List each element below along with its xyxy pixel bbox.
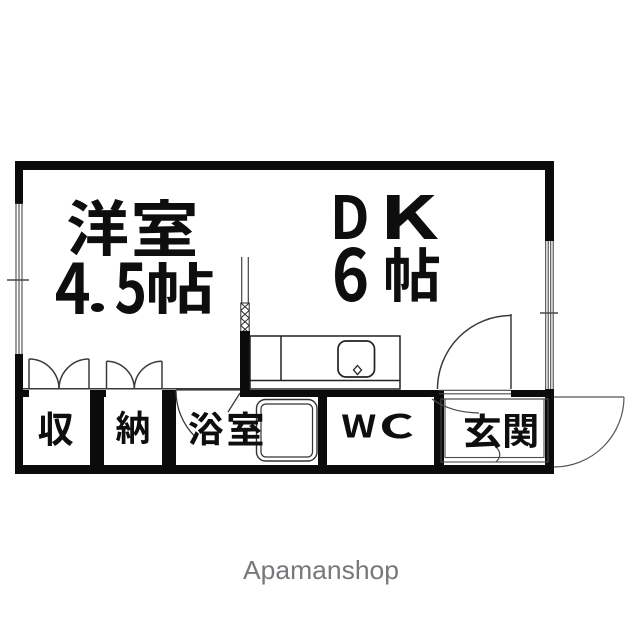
svg-text:Apamanshop: Apamanshop bbox=[243, 555, 399, 585]
